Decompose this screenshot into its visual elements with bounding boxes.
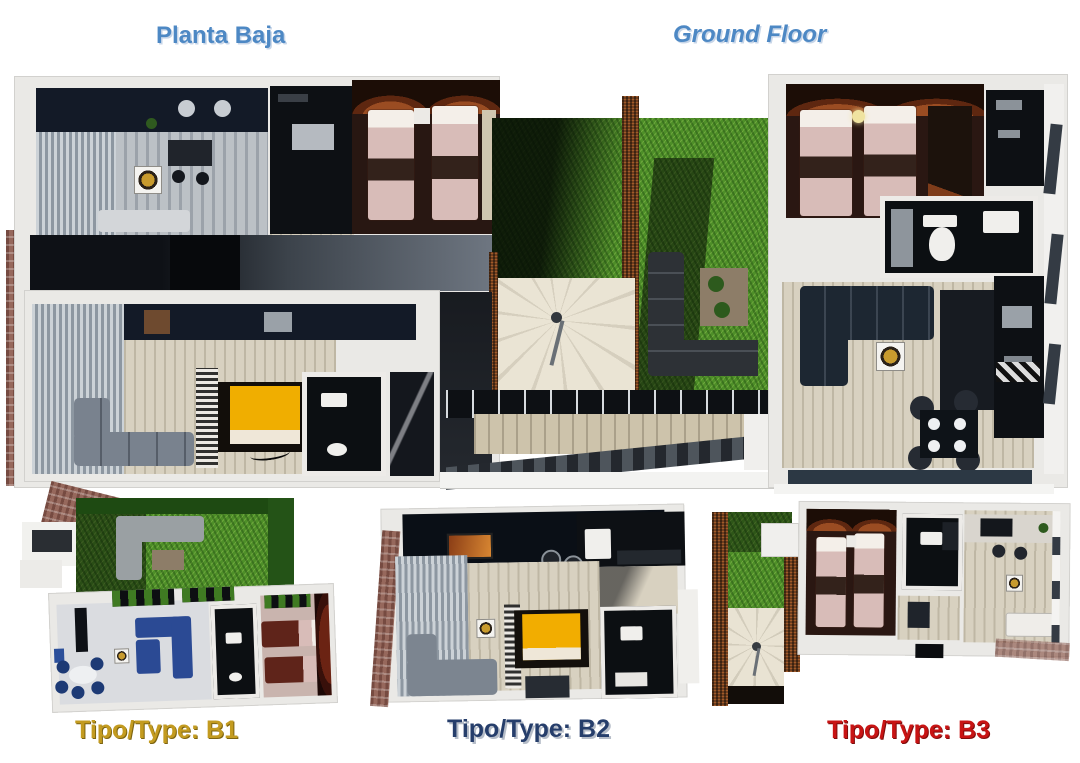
sofa-light	[98, 210, 190, 232]
living-kitchen-room	[36, 88, 268, 236]
hedge-top	[76, 498, 294, 514]
logo-art-box	[876, 342, 905, 371]
logo-art-box	[114, 648, 130, 664]
label-type-b1: Tipo/Type: B1	[75, 716, 238, 745]
kitchen-counter	[124, 304, 416, 340]
main-floor-plan	[0, 0, 1080, 495]
right-building	[768, 74, 1068, 488]
plate	[954, 418, 966, 430]
unit-b2	[380, 503, 687, 702]
garden-b1	[76, 498, 294, 592]
kitchen-counter	[36, 88, 268, 132]
toilet	[929, 227, 955, 261]
white-wall	[20, 560, 62, 588]
sink	[321, 393, 347, 407]
skylight	[32, 530, 72, 552]
umbrella-pole	[753, 648, 761, 676]
plate	[928, 418, 940, 430]
kitchen-living-b3	[963, 510, 1060, 643]
window-wall	[1044, 84, 1064, 474]
window	[1044, 234, 1063, 305]
left-building	[14, 76, 500, 488]
sink	[225, 632, 241, 644]
plant	[1038, 523, 1048, 533]
appliance-steel	[264, 312, 292, 332]
white-structure	[762, 524, 798, 556]
stool	[1014, 547, 1027, 560]
dining-table	[920, 410, 978, 458]
sink	[920, 532, 942, 545]
yellow-bed	[522, 613, 581, 660]
floor-plan-sheet: Planta Baja Ground Floor	[0, 0, 1080, 763]
bedroom-top	[352, 80, 500, 234]
ground-band	[440, 472, 792, 488]
cabinet-wood	[144, 310, 170, 334]
hall-floor	[897, 596, 959, 641]
bed	[261, 620, 322, 648]
toilet	[229, 672, 242, 681]
hedge-left	[712, 512, 728, 706]
brick-shade	[995, 639, 1070, 661]
unit-b1	[48, 583, 338, 713]
outdoor-table	[152, 550, 184, 570]
sink-basin	[178, 100, 195, 117]
hedge-right	[268, 498, 294, 592]
umbrella-pole	[549, 320, 564, 366]
label-type-b3: Tipo/Type: B3	[827, 716, 990, 745]
nightstand	[846, 535, 856, 547]
bed	[432, 106, 478, 220]
plate	[954, 440, 966, 452]
bedroom-b1	[260, 593, 332, 697]
sofa-dark	[800, 286, 848, 386]
blue-sofa	[171, 616, 193, 679]
plate	[928, 440, 940, 452]
plan-type-b2	[370, 497, 708, 715]
stove	[980, 518, 1012, 536]
logo-art-box	[476, 619, 495, 638]
outdoor-sofa	[116, 516, 204, 542]
shelf	[278, 94, 308, 102]
lamp	[852, 110, 865, 123]
toilet	[327, 443, 347, 456]
plant	[146, 118, 157, 129]
yellow-bed	[230, 386, 300, 444]
glass-door	[264, 594, 310, 609]
storage-room	[390, 372, 434, 476]
outdoor-table	[700, 268, 748, 326]
window-wall	[1051, 511, 1060, 643]
glass-door	[182, 587, 234, 603]
door-notch	[915, 644, 943, 658]
outdoor-sofa	[648, 340, 766, 376]
bedroom-b3	[806, 509, 897, 636]
plant	[714, 302, 730, 318]
fridge	[585, 529, 612, 559]
bed	[368, 110, 414, 220]
stool	[992, 545, 1005, 558]
bathroom	[600, 606, 678, 699]
dark-band	[728, 686, 784, 704]
slat-partition	[196, 368, 218, 468]
chair	[172, 170, 185, 183]
shelf	[998, 130, 1020, 138]
chair	[196, 172, 209, 185]
tv-panel	[75, 608, 89, 652]
corridor	[30, 235, 500, 291]
plan-type-b1	[20, 496, 336, 710]
bench	[908, 602, 930, 628]
plant	[708, 276, 724, 292]
logo-art-box	[134, 166, 162, 194]
counter	[617, 550, 681, 565]
cabinet	[942, 522, 958, 550]
umbrella-hub	[551, 312, 562, 323]
counter	[964, 514, 1060, 543]
exterior-band	[774, 484, 1054, 494]
dark-doorway	[170, 235, 240, 291]
nightstand	[414, 108, 430, 124]
sofa-gray	[74, 432, 194, 466]
sink	[983, 211, 1019, 233]
copper-arch-headboard	[806, 509, 896, 532]
label-type-b2: Tipo/Type: B2	[447, 715, 610, 744]
shelf	[996, 100, 1022, 110]
logo-art-box	[1006, 575, 1023, 592]
bed	[800, 110, 852, 216]
patio-b3	[728, 608, 784, 686]
shower-panel	[891, 209, 913, 267]
bathroom	[211, 604, 260, 700]
kitchen	[576, 511, 685, 567]
bathroom	[302, 372, 386, 476]
unit-b3	[797, 501, 1070, 657]
bathroom	[902, 514, 963, 591]
sink-basin	[214, 100, 231, 117]
window	[1043, 344, 1061, 405]
lower-apartment	[24, 290, 440, 482]
appliance-steel	[1002, 306, 1032, 328]
white-sofa	[1005, 613, 1053, 637]
dining-table	[168, 140, 212, 166]
toilet-tank	[923, 215, 957, 227]
bed	[816, 537, 847, 627]
window	[1043, 124, 1062, 195]
arched-accent-wall	[314, 593, 332, 695]
tv-screen	[292, 124, 334, 150]
shower-tray	[615, 672, 647, 687]
wing-wall	[678, 589, 700, 683]
bathroom	[880, 196, 1038, 278]
kitchen-wall-units	[994, 276, 1044, 438]
dark-media-room	[270, 86, 354, 234]
checkered-mat	[996, 362, 1040, 382]
blue-sofa-chaise	[136, 639, 161, 674]
bench	[525, 675, 569, 698]
glass-door	[112, 589, 175, 607]
sink	[620, 626, 642, 640]
sofa-gray	[407, 659, 498, 697]
plan-type-b3	[712, 498, 1072, 714]
bed	[854, 533, 885, 627]
